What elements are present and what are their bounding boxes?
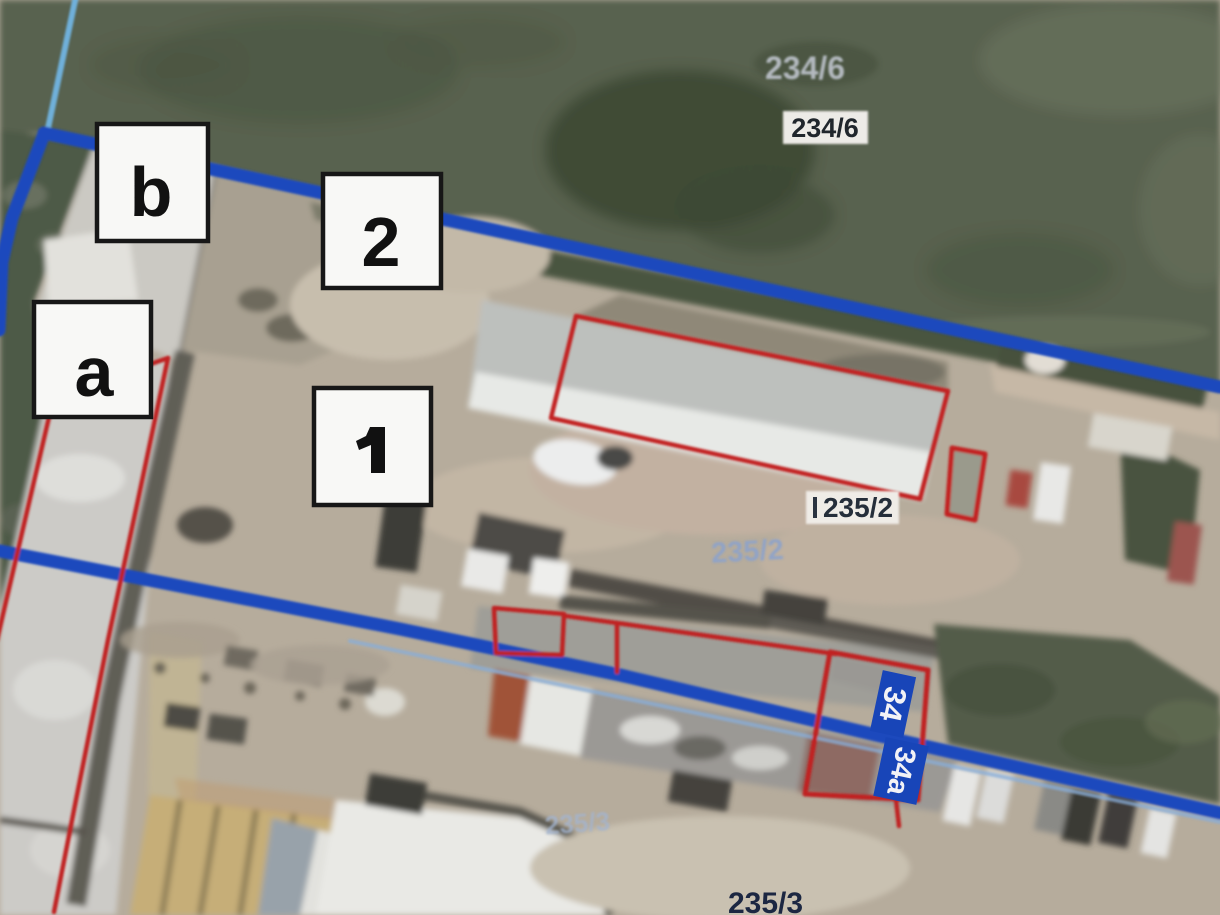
svg-text:235/3: 235/3	[544, 806, 611, 840]
svg-text:235/2: 235/2	[710, 534, 784, 570]
svg-text:b: b	[130, 153, 173, 231]
svg-text:234/6: 234/6	[765, 50, 845, 86]
svg-text:235/2: 235/2	[823, 492, 893, 523]
svg-text:2: 2	[362, 203, 401, 281]
svg-text:234/6: 234/6	[791, 113, 859, 143]
svg-text:a: a	[75, 333, 115, 411]
svg-text:235/3: 235/3	[728, 887, 803, 915]
